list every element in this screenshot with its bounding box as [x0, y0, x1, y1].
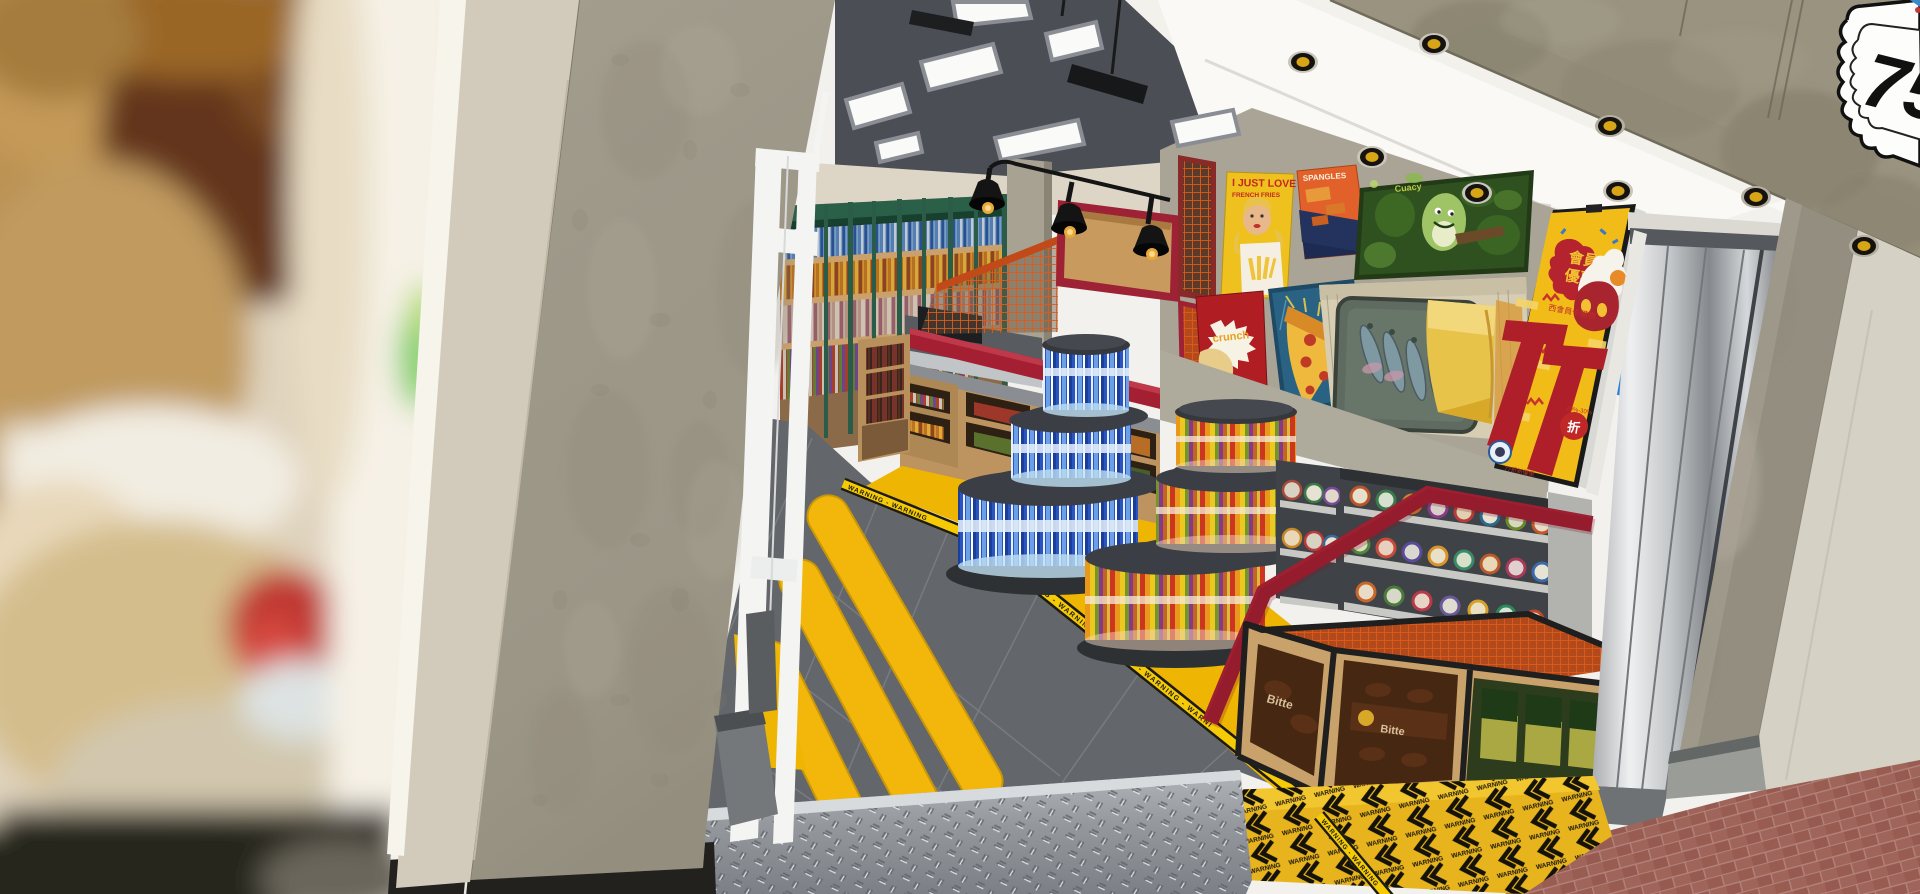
svg-text:I JUST LOVE: I JUST LOVE	[1232, 177, 1296, 190]
svg-text:折: 折	[1566, 419, 1581, 436]
